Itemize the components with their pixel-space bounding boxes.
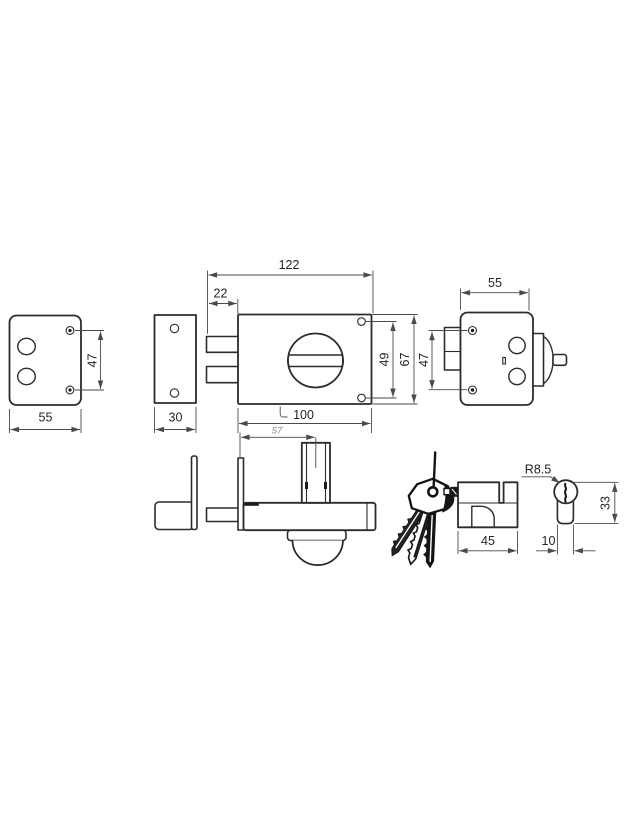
cylinder-body xyxy=(458,482,518,527)
dim-leader-hook xyxy=(280,407,287,418)
key-bit-connector xyxy=(444,489,450,495)
dim-side-width: 55 xyxy=(461,276,530,311)
lock-side-view: 55 47 xyxy=(417,276,567,405)
dim-label-49: 49 xyxy=(378,353,392,367)
cylinder-profile-view: R8.5 33 10 xyxy=(522,463,619,555)
bolt-lower xyxy=(207,367,239,383)
dim-cover-width: 30 xyxy=(155,407,197,433)
dim-label-55: 55 xyxy=(39,411,53,425)
dim-stem-width: 10 xyxy=(536,525,596,555)
keeper-flange xyxy=(155,502,194,530)
dim-body-width: 100 xyxy=(238,407,372,434)
bolt-upper xyxy=(207,337,239,353)
lock-front-view: 122 22 49 67 100 xyxy=(207,258,418,433)
cam-profile xyxy=(544,337,554,384)
lock-top-view: 57 xyxy=(155,426,376,566)
dim-label-30: 30 xyxy=(169,411,183,425)
plate-notch xyxy=(244,503,259,506)
cover-plate-view: 30 xyxy=(155,315,197,433)
key-ring-hole xyxy=(428,487,437,496)
dim-label-47: 47 xyxy=(86,354,100,368)
dim-strike-width: 55 xyxy=(10,409,82,433)
dim-label-55: 55 xyxy=(488,276,502,290)
key-bunch xyxy=(386,453,458,568)
bolt-stack xyxy=(445,328,461,371)
keys-and-cylinder-view: 45 xyxy=(386,453,517,568)
spindle xyxy=(553,355,567,366)
knob-dome xyxy=(293,541,343,566)
dim-label-22: 22 xyxy=(214,287,228,301)
dim-label-45: 45 xyxy=(481,534,495,548)
dim-label-57: 57 xyxy=(272,426,283,437)
profile-keyway xyxy=(565,483,566,503)
screw-hole-center xyxy=(471,388,474,391)
cover-plate-outline xyxy=(155,315,197,403)
key-lanyard xyxy=(434,453,436,488)
knob-neck-top xyxy=(288,530,347,540)
bolt-top xyxy=(207,508,239,522)
thumb-knob xyxy=(288,334,343,388)
cylinder-housing-side xyxy=(533,334,544,387)
key-blades xyxy=(386,506,435,568)
dim-radius: R8.5 xyxy=(522,463,560,484)
dim-label-100: 100 xyxy=(293,408,314,422)
drawing-canvas: 47 55 30 122 xyxy=(0,0,624,832)
body-top-outline xyxy=(244,503,376,530)
dim-label-33: 33 xyxy=(599,496,613,510)
dim-label-122: 122 xyxy=(279,258,300,272)
dim-bolt-throw: 22 xyxy=(209,287,238,317)
keeper-upright xyxy=(192,456,198,530)
screw-hole-center xyxy=(68,388,71,391)
dim-label-67: 67 xyxy=(398,353,412,367)
dim-label-10: 10 xyxy=(542,534,556,548)
dim-label-47: 47 xyxy=(417,353,431,367)
screw-hole-center xyxy=(68,329,71,332)
dim-label-r85: R8.5 xyxy=(525,463,551,477)
technical-drawing: 47 55 30 122 xyxy=(0,0,624,832)
dim-cylinder-length: 45 xyxy=(458,531,518,554)
screw-hole-center xyxy=(471,329,474,332)
strike-plate-front-view: 47 55 xyxy=(10,316,105,434)
